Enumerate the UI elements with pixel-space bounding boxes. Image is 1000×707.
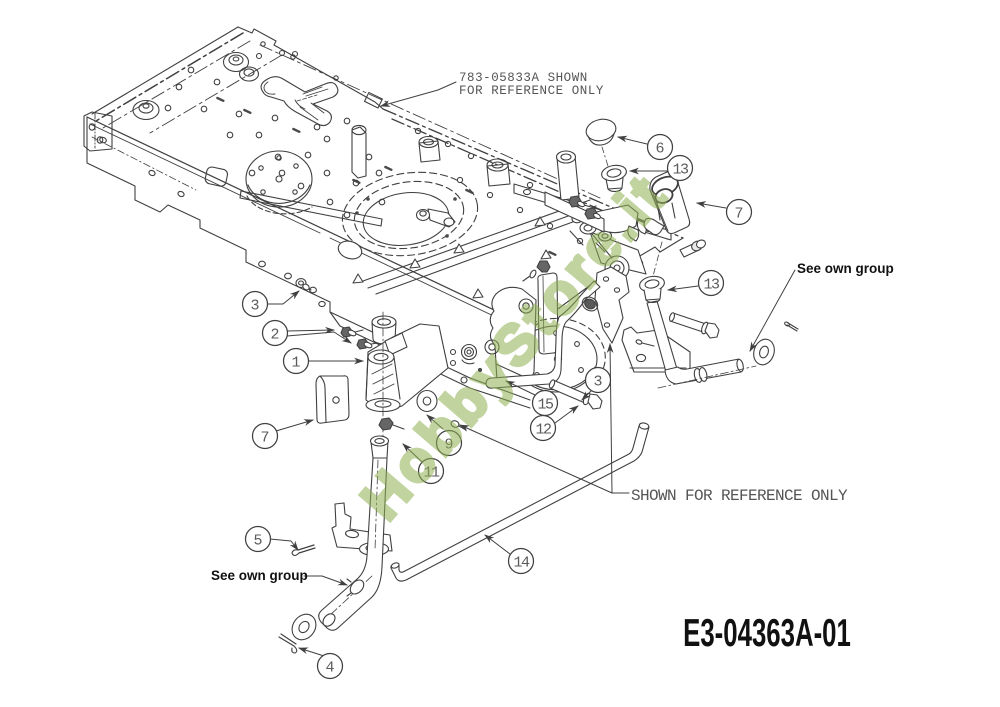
svg-text:7: 7: [734, 206, 743, 223]
svg-text:4: 4: [325, 660, 334, 677]
svg-text:7: 7: [260, 430, 269, 447]
svg-text:13: 13: [672, 162, 689, 179]
svg-text:5: 5: [253, 533, 262, 550]
svg-text:6: 6: [655, 141, 664, 158]
svg-text:15: 15: [537, 397, 554, 414]
svg-text:14: 14: [513, 555, 530, 572]
svg-text:FOR REFERENCE ONLY: FOR REFERENCE ONLY: [459, 84, 604, 98]
svg-text:See own group: See own group: [211, 568, 308, 583]
svg-text:783-05833A SHOWN: 783-05833A SHOWN: [459, 71, 588, 85]
svg-text:E3-04363A-01: E3-04363A-01: [683, 611, 851, 654]
svg-text:13: 13: [703, 277, 720, 294]
svg-text:12: 12: [535, 422, 551, 439]
svg-text:SHOWN FOR REFERENCE ONLY: SHOWN FOR REFERENCE ONLY: [631, 487, 848, 505]
svg-text:2: 2: [270, 327, 279, 344]
svg-text:3: 3: [593, 374, 602, 391]
svg-text:3: 3: [250, 298, 259, 315]
svg-text:See own group: See own group: [797, 261, 894, 276]
svg-text:1: 1: [291, 355, 300, 372]
